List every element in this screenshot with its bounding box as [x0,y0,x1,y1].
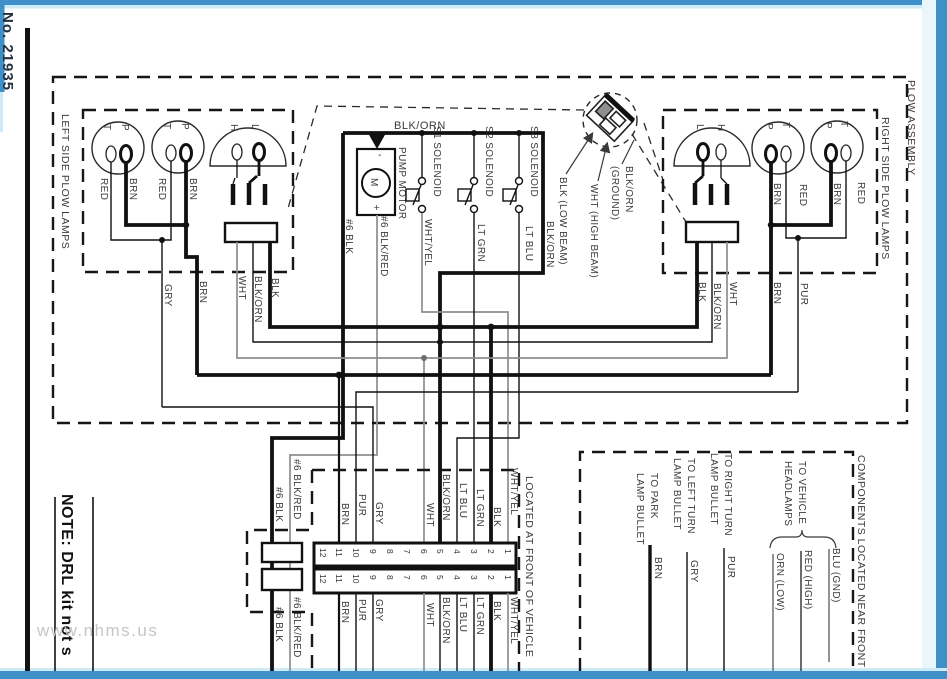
lamp-pin-label: P [119,124,130,131]
pin-number: 11 [334,574,344,583]
s3-label: S3 SOLENOID [528,126,539,197]
to-right-turn-line2: LAMP BULLET [708,453,719,525]
to-left-turn-line2: LAMP BULLET [671,458,682,530]
wire-label-pur: PUR [725,556,736,578]
wire-label-red: RED [156,178,167,200]
wire-label-blk-orn: BLK/ORN [544,221,555,268]
pin-number: 3 [469,549,479,554]
wire-label-lt-grn: LT GRN [474,597,485,635]
doc-number: No. 21935 [0,12,16,91]
bottom-border-overlay [0,671,947,679]
pin-number: 2 [486,575,496,580]
wire-label-blu-gnd: BLU (GND) [830,548,841,603]
wire-label-brn: BRN [197,281,208,303]
wire-label-red: RED [855,182,866,204]
wire-label-brn: BRN [771,183,782,205]
wire-label-blk: BLK [491,507,502,527]
pin-number: 7 [402,575,412,580]
lamp-pin-label: H [715,124,726,132]
wire-label-wht: WHT [424,603,435,627]
lamp-pin-label: T [838,121,849,128]
wire-label-brn: BRN [127,178,138,200]
wire-label-n6-blk-red: #6 BLK/RED [291,597,302,658]
wire-label-pur: PUR [356,599,367,621]
wire-label-gry: GRY [373,599,384,622]
left-lamps-label: LEFT SIDE PLOW LAMPS [59,114,71,249]
pin-number: 8 [385,575,395,580]
components-front-label: COMPONENTS LOCATED NEAR FRONT [855,455,867,668]
to-vehicle-line2: HEADLAMPS [782,461,793,526]
pin-number: 7 [402,549,412,554]
s1-label: S1 SOLENOID [431,126,442,197]
wire-label-brn: BRN [187,178,198,200]
callout-low-beam: BLK (LOW BEAM) [557,177,568,265]
pin-number: 5 [435,575,445,580]
pin-number: 8 [385,549,395,554]
wire-label-n6-blk-red: #6 BLK/RED [291,459,302,520]
lamp-pin-label: P [179,123,190,130]
wire-label-n6-blk: #6 BLK [343,219,354,254]
wire-label-blk-orn: BLK/ORN [440,597,451,644]
lamp-pin-label: T [780,122,791,129]
wire-label-pur: PUR [798,283,809,305]
right-headlamp-connector [686,222,738,242]
wire-label-n6-blk-red: #6 BLK/RED [378,216,389,277]
lamp-pin-label: L [249,124,260,130]
pin-number: 10 [351,574,361,584]
wire-label-blk: BLK [491,601,502,621]
motor-minus: - [378,149,382,161]
pin-number: 12 [318,548,328,558]
motor-m: M [368,178,379,187]
wire-label-lt-blu: LT BLU [457,483,468,518]
watermark: www.nhms.us [36,621,158,640]
pin-number: 12 [318,574,328,584]
scanned-wiring-diagram-page: No. 21935 NOTE: DRL kit not s www.nhms.u… [0,0,947,679]
wire-label-n6-blk: #6 BLK [273,607,284,642]
located-front-label: LOCATED AT FRONT OF VEHICLE [523,476,535,657]
wire-label-gry: GRY [162,284,173,307]
plow-assembly-label: PLOW ASSEMBLY [905,80,917,176]
pin-number: 1 [503,575,513,580]
pin-number: 4 [452,575,462,580]
callout-ground-line1: BLK/ORN [623,166,634,213]
wire-label-brn: BRN [652,557,663,579]
to-left-turn-line1: TO LEFT TURN [685,458,696,534]
pin-number: 6 [419,575,429,580]
wire-label-brn: BRN [771,282,782,304]
wire-label-gry: GRY [373,502,384,525]
callout-ground-line2: (GROUND) [609,166,620,220]
lamp-pin-label: H [228,124,239,132]
motor-plus: + [374,202,381,214]
lamp-pin-label: L [694,124,705,130]
lamp-pin-label: P [763,123,774,130]
pin-number: 9 [368,549,378,554]
pin-number: 10 [351,548,361,558]
wire-label-lt-blu: LT BLU [523,226,534,261]
to-park-line2: LAMP BULLET [634,473,645,545]
wire-label-wht: WHT [727,282,738,306]
wire-label-wht-yel: WHT/YEL [508,468,519,515]
right-lamps-label: RIGHT SIDE PLOW LAMPS [879,117,891,260]
to-vehicle-line1: TO VEHICLE [796,461,807,524]
wire-label-brn: BRN [339,503,350,525]
wire-label-brn: BRN [831,183,842,205]
wire-label-wht-yel: WHT/YEL [508,597,519,644]
wiring-diagram: No. 21935 NOTE: DRL kit not s www.nhms.u… [0,0,947,679]
callout-high-beam: WHT (HIGH BEAM) [588,184,599,278]
pin-number: 3 [469,575,479,580]
to-park-line1: TO PARK [648,473,659,519]
wire-label-orn-low: ORN (LOW) [774,553,785,611]
to-right-turn-line1: TO RIGHT TURN [722,453,733,536]
wire-label-wht-yel: WHT/YEL [422,219,433,266]
pump-motor-label: PUMP MOTOR [396,147,407,220]
wire-label-red: RED [98,178,109,200]
wire-label-blk-orn: BLK/ORN [440,474,451,521]
pin-number: 2 [486,549,496,554]
pin-number: 11 [334,548,344,557]
wire-label-gry: GRY [688,560,699,583]
wire-label-red: RED [797,184,808,206]
s2-label: S2 SOLENOID [483,126,494,197]
wire-label-wht: WHT [424,503,435,527]
wire-label-brn: BRN [339,601,350,623]
wire-label-n6-blk: #6 BLK [273,487,284,522]
battery-cable-connector-1 [262,543,302,562]
wire-label-red-high: RED (HIGH) [802,550,813,610]
pin-number: 6 [419,549,429,554]
lamp-pin-label: P [822,122,833,129]
wire-label-pur: PUR [356,494,367,516]
pin-number: 4 [452,549,462,554]
lamp-pin-label: T [101,124,112,131]
pin-number: 9 [368,575,378,580]
wire-label-lt-grn: LT GRN [475,224,486,262]
page-rule-bar [25,28,30,679]
battery-cable-connector-2 [262,569,302,590]
wire-label-lt-grn: LT GRN [474,489,485,527]
lamp-pin-label: T [161,123,172,130]
pin-number: 1 [503,549,513,554]
wire-label-lt-blu: LT BLU [457,597,468,632]
left-headlamp-connector [225,223,277,242]
pin-number: 5 [435,549,445,554]
